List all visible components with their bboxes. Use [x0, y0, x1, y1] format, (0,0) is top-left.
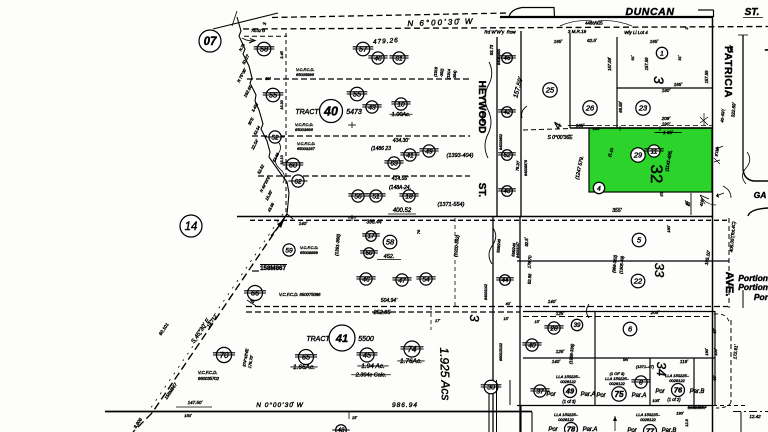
svg-text:Por: Por [754, 292, 768, 302]
svg-text:Por: Por [548, 427, 558, 432]
svg-text:29: 29 [633, 151, 642, 160]
svg-text:84003102: 84003102 [484, 284, 488, 300]
svg-text:82.5ʼ: 82.5ʼ [524, 236, 529, 246]
svg-text:Par.A: Par.A [581, 392, 596, 398]
svg-text:10: 10 [397, 101, 405, 108]
svg-text:67ʼ: 67ʼ [713, 328, 717, 333]
svg-text:78: 78 [567, 425, 576, 432]
svg-text:51: 51 [372, 193, 380, 200]
svg-text:5473: 5473 [346, 109, 362, 116]
svg-text:41: 41 [335, 333, 348, 345]
svg-text:504.94ʼ: 504.94ʼ [381, 298, 398, 304]
svg-text:T: T [763, 48, 768, 53]
svg-text:65008899: 65008899 [300, 250, 319, 255]
svg-text:452.: 452. [384, 254, 395, 260]
svg-text:190ʼ: 190ʼ [662, 88, 672, 93]
svg-text:8: 8 [639, 379, 643, 386]
svg-text:3 M.R.19: 3 M.R.19 [568, 29, 587, 34]
svg-text:(1393-404): (1393-404) [447, 153, 474, 159]
svg-text:(1 of 2): (1 of 2) [667, 397, 681, 402]
svg-text:125ʼ: 125ʼ [556, 311, 566, 316]
svg-text:59: 59 [285, 247, 293, 254]
svg-text:1.66Ac.: 1.66Ac. [293, 364, 315, 371]
svg-text:44: 44 [502, 278, 509, 284]
svg-text:50: 50 [366, 251, 373, 257]
svg-text:84003602: 84003602 [499, 134, 503, 150]
svg-text:0028122: 0028122 [640, 417, 656, 422]
svg-text:17: 17 [368, 234, 375, 240]
svg-text:12.8: 12.8 [685, 418, 689, 426]
svg-text:18: 18 [405, 193, 413, 200]
svg-text:1.76Ac.: 1.76Ac. [400, 358, 422, 365]
svg-text:41: 41 [406, 152, 414, 159]
svg-text:40ʼ: 40ʼ [505, 302, 510, 306]
svg-text:252.85: 252.85 [373, 310, 392, 316]
svg-text:5ʼ8: 5ʼ8 [660, 191, 664, 197]
svg-text:16.30: 16.30 [280, 99, 284, 109]
svg-text:100ʼ: 100ʼ [714, 348, 718, 355]
svg-text:-394): -394) [453, 70, 458, 80]
svg-text:63: 63 [390, 160, 398, 167]
svg-text:Wly Li Lot 4: Wly Li Lot 4 [624, 30, 648, 35]
svg-text:78.02ʼG: 78.02ʼG [251, 28, 265, 33]
svg-text:105ʼ: 105ʼ [652, 398, 660, 403]
svg-text:414.56ʼ: 414.56ʼ [392, 176, 409, 182]
svg-text:1: 1 [660, 50, 664, 57]
svg-text:48: 48 [504, 189, 511, 195]
svg-text:76: 76 [416, 229, 421, 234]
svg-text:65005886: 65005886 [296, 72, 315, 77]
svg-text:157.59: 157.59 [704, 70, 709, 83]
svg-text:986.94: 986.94 [392, 402, 418, 409]
svg-text:15ʼ: 15ʼ [503, 317, 508, 321]
svg-text:11: 11 [651, 148, 658, 155]
svg-text:180ʼ: 180ʼ [666, 225, 671, 233]
svg-text:25: 25 [545, 86, 555, 95]
svg-text:1.925 Acs: 1.925 Acs [437, 347, 453, 400]
svg-text:82.56: 82.56 [527, 273, 533, 285]
svg-text:190ʼ: 190ʼ [704, 348, 709, 356]
svg-text:15ʼ: 15ʼ [534, 320, 539, 324]
svg-text:3.45: 3.45 [280, 50, 284, 58]
svg-text:165ʼ: 165ʼ [554, 39, 564, 44]
svg-text:2.304c Calc.: 2.304c Calc. [355, 373, 387, 379]
svg-text:Par.B: Par.B [690, 389, 705, 395]
svg-text:190ʼ: 190ʼ [676, 411, 684, 416]
svg-text:47: 47 [398, 277, 406, 284]
svg-text:14: 14 [185, 221, 198, 233]
svg-text:1.94 Ac.: 1.94 Ac. [361, 363, 385, 370]
svg-text:46: 46 [374, 55, 382, 62]
svg-text:0028122: 0028122 [669, 378, 685, 383]
svg-text:140ʼ: 140ʼ [548, 299, 558, 304]
svg-text:12.42: 12.42 [749, 414, 761, 419]
svg-text:Por: Por [546, 392, 556, 398]
svg-text:Rd WʼWʼy Row: Rd WʼWʼy Row [484, 30, 516, 35]
svg-text:62.5ʼ: 62.5ʼ [587, 38, 598, 43]
svg-text:398.44: 398.44 [366, 220, 382, 226]
svg-text:65003287: 65003287 [297, 146, 316, 151]
svg-text:140ʼ: 140ʼ [552, 359, 562, 364]
svg-text:90ʼ: 90ʼ [713, 375, 717, 380]
svg-text:46: 46 [504, 56, 511, 62]
svg-text:TRACT: TRACT [295, 109, 319, 116]
svg-text:49: 49 [425, 148, 433, 155]
svg-text:61: 61 [395, 55, 403, 62]
svg-text:ST.: ST. [745, 7, 760, 18]
svg-text:95ʼ: 95ʼ [623, 357, 630, 362]
svg-text:-392): -392) [440, 68, 445, 78]
svg-text:AVE.: AVE. [723, 272, 735, 297]
svg-text:0028122: 0028122 [560, 379, 576, 384]
svg-text:DUNCAN: DUNCAN [625, 6, 674, 18]
svg-text:58: 58 [386, 238, 395, 247]
svg-text:125ʼ: 125ʼ [556, 349, 566, 354]
svg-text:22: 22 [633, 277, 642, 286]
svg-text:(1371-554): (1371-554) [438, 202, 465, 208]
svg-text:S 0°00ʼ36̂E: S 0°00ʼ36̂E [547, 135, 573, 141]
svg-text:147.50ʼ: 147.50ʼ [188, 400, 204, 405]
svg-text:Par.A: Par.A [583, 427, 598, 432]
svg-text:Por: Por [596, 393, 606, 399]
svg-text:56: 56 [354, 193, 362, 200]
svg-text:140ʼ: 140ʼ [299, 221, 309, 226]
svg-text:860015102: 860015102 [499, 343, 503, 361]
svg-text:165ʼ: 165ʼ [650, 39, 660, 44]
svg-text:158M867: 158M867 [260, 265, 286, 272]
svg-text:97.29ʼ: 97.29ʼ [481, 110, 486, 122]
svg-text:33: 33 [652, 263, 667, 278]
svg-text:Par.B: Par.B [662, 428, 677, 432]
svg-text:84008976: 84008976 [524, 160, 528, 176]
svg-text:150ʼ: 150ʼ [184, 413, 192, 418]
svg-text:37: 37 [536, 388, 544, 395]
svg-text:84003107: 84003107 [516, 241, 520, 258]
svg-text:4488/925: 4488/925 [585, 21, 603, 26]
svg-text:26: 26 [585, 104, 595, 113]
svg-text:3ʼ: 3ʼ [684, 26, 689, 29]
svg-text:3: 3 [651, 76, 667, 84]
svg-text:40: 40 [528, 342, 536, 349]
svg-text:N 0°00ʼ30̂ W: N 0°00ʼ30̂ W [256, 401, 304, 409]
svg-text:46: 46 [362, 276, 370, 283]
svg-text:15ʼ: 15ʼ [352, 416, 357, 420]
svg-text:91ʼ: 91ʼ [678, 55, 682, 60]
svg-text:860035702: 860035702 [198, 376, 220, 381]
svg-text:(1914: (1914 [447, 69, 452, 79]
svg-text:28: 28 [549, 325, 558, 332]
svg-text:39: 39 [574, 322, 581, 329]
svg-text:HEYWOOD: HEYWOOD [476, 81, 487, 134]
svg-text:93.73: 93.73 [489, 44, 494, 55]
svg-text:3: 3 [467, 314, 482, 322]
svg-text:4: 4 [597, 185, 601, 192]
svg-text:40: 40 [323, 105, 338, 119]
svg-text:30: 30 [487, 385, 495, 392]
svg-text:52: 52 [504, 153, 511, 159]
svg-text:5500: 5500 [358, 336, 374, 343]
svg-text:106ʼ: 106ʼ [729, 44, 734, 53]
svg-text:355ʼ: 355ʼ [612, 208, 622, 214]
svg-text:46ʼ: 46ʼ [685, 200, 689, 205]
svg-text:165ʼ: 165ʼ [674, 82, 684, 87]
svg-text:1.00Ac.: 1.00Ac. [392, 112, 411, 118]
svg-text:208ʼ: 208ʼ [661, 116, 672, 121]
svg-text:0028122: 0028122 [558, 417, 574, 422]
svg-text:434.30ʼ: 434.30ʼ [393, 138, 410, 144]
svg-text:(1371–47): (1371–47) [636, 364, 655, 369]
svg-text:77: 77 [646, 427, 655, 432]
svg-text:ST.: ST. [476, 183, 487, 198]
svg-text:91ʼ: 91ʼ [631, 55, 635, 60]
svg-text:Por: Por [627, 428, 637, 432]
svg-text:(1 of 3): (1 of 3) [562, 399, 576, 404]
svg-text:54: 54 [422, 276, 430, 283]
svg-text:43: 43 [368, 104, 376, 111]
svg-text:V.C.F.C.D. 650075086: V.C.F.C.D. 650075086 [279, 292, 321, 297]
svg-text:62: 62 [294, 178, 302, 185]
svg-text:400.52: 400.52 [393, 208, 412, 214]
svg-text:TRACT: TRACT [306, 336, 330, 343]
svg-text:119ʼ: 119ʼ [680, 359, 689, 364]
svg-text:52: 52 [271, 134, 279, 141]
svg-text:66.59ʼ: 66.59ʼ [618, 100, 623, 112]
svg-text:84001600: 84001600 [497, 49, 501, 65]
svg-text:07: 07 [204, 36, 217, 48]
svg-text:76: 76 [674, 386, 683, 395]
svg-text:75: 75 [614, 390, 624, 399]
svg-text:23: 23 [638, 104, 648, 113]
svg-text:Par.A: Par.A [632, 393, 647, 399]
svg-text:GA: GA [754, 190, 767, 200]
svg-text:65003696: 65003696 [295, 127, 314, 132]
svg-text:49: 49 [565, 387, 575, 396]
svg-text:Por: Por [655, 389, 665, 395]
svg-text:157.59: 157.59 [644, 57, 649, 70]
svg-text:157.59ʼ: 157.59ʼ [607, 56, 612, 71]
svg-text:32: 32 [647, 165, 666, 184]
svg-text:42: 42 [504, 110, 511, 116]
svg-text:205ʼ: 205ʼ [650, 310, 661, 315]
svg-text:(1486 23: (1486 23 [371, 146, 391, 152]
svg-text:0028122: 0028122 [609, 381, 625, 386]
svg-text:17ʼ: 17ʼ [435, 319, 440, 323]
svg-text:V.C.F.C.D.: V.C.F.C.D. [198, 370, 217, 375]
